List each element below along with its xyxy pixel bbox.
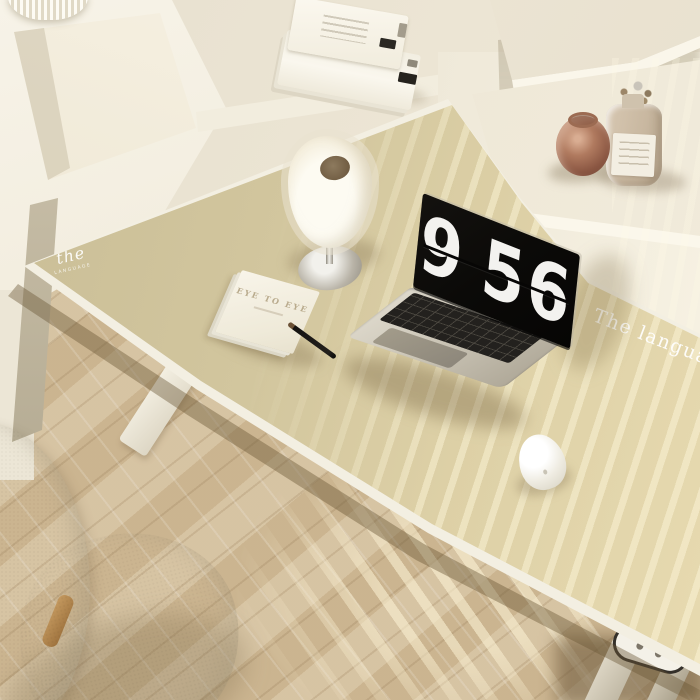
- amber-vase: [556, 116, 610, 176]
- book-cover-text-lines: [320, 15, 369, 45]
- bottle-neck: [622, 94, 644, 108]
- glass-bottle: [606, 104, 662, 186]
- notebook-subtitle-lines: [254, 306, 284, 316]
- mouse-logo-dot: [543, 469, 548, 475]
- book-spine-label: [398, 72, 418, 85]
- lamp-shade-opening: [318, 154, 352, 183]
- bottle-label-text-lines: [618, 141, 649, 167]
- book-spine-tag: [407, 59, 418, 68]
- desk-scene-photo: the LANGUAGE The langua EYE TO EYE PM 9 …: [0, 0, 700, 700]
- flip-clock-hour: 9: [415, 196, 467, 303]
- amber-vase-rim: [568, 112, 598, 128]
- book-top-label: [379, 38, 396, 50]
